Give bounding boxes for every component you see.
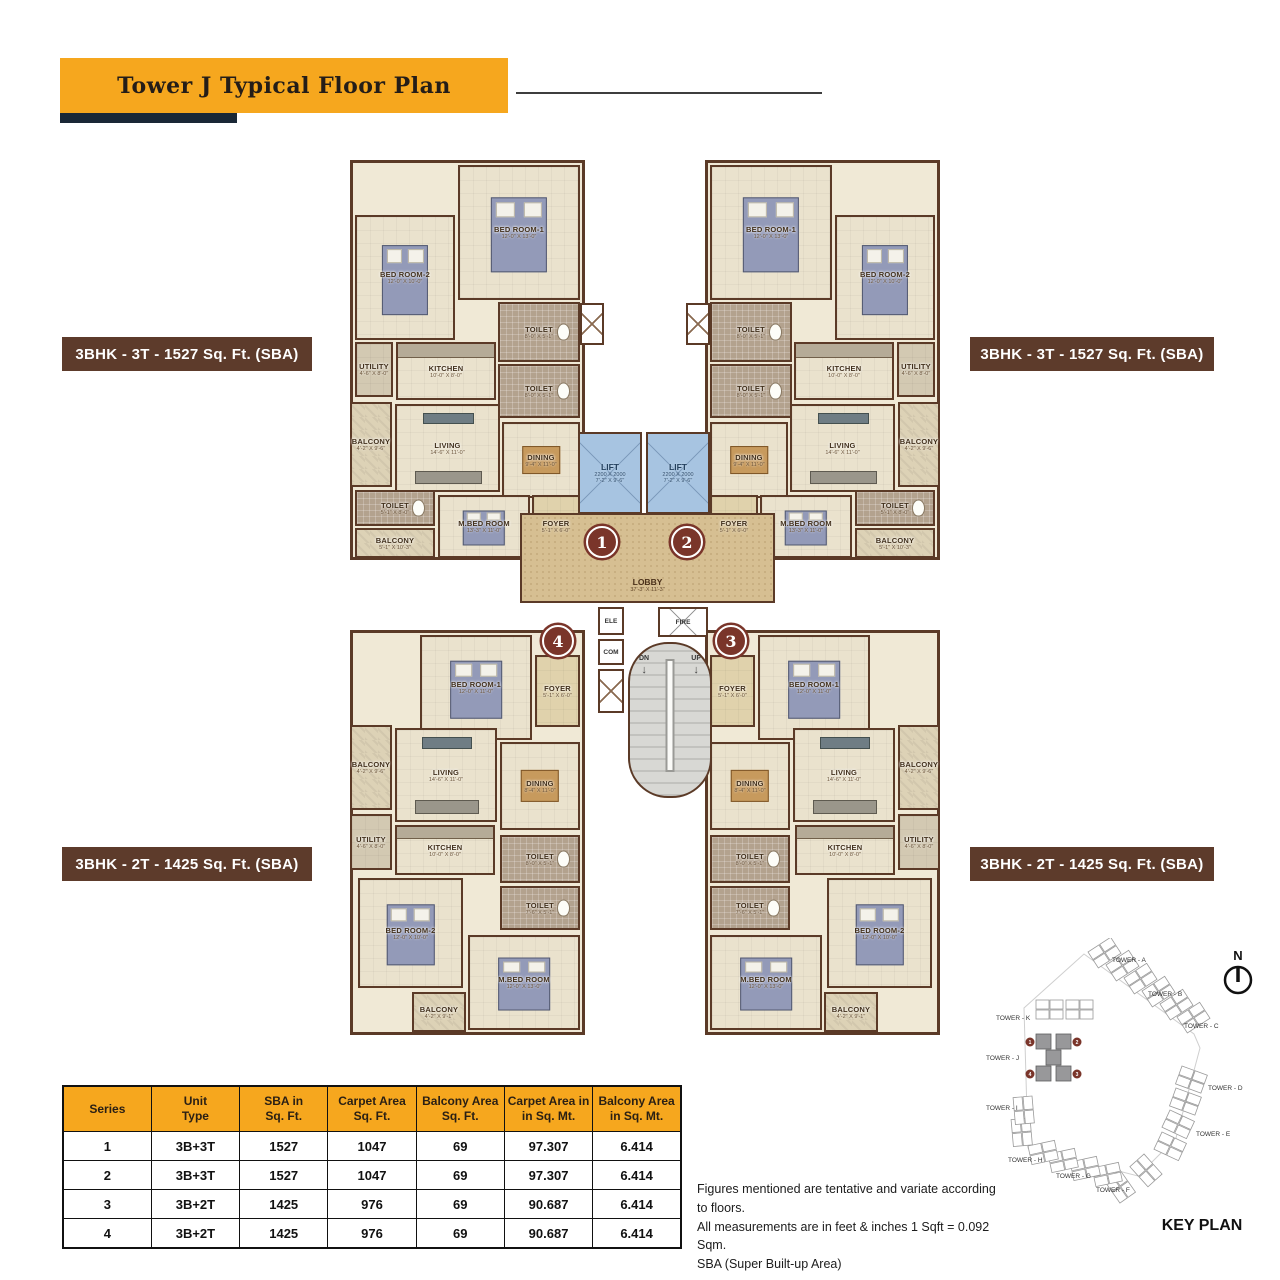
- lobby-dim: 37'-3" X 11'-3": [630, 587, 664, 593]
- table-cell: 2: [63, 1161, 151, 1190]
- toilet-wc-icon: [412, 500, 425, 517]
- tower-c-label: TOWER - C: [1184, 1023, 1219, 1030]
- sofa-icon: [415, 800, 480, 814]
- room-mbed: M.BED ROOM13'-3" X 11'-0": [438, 495, 530, 558]
- room-utility: UTILITY4'-6" X 8'-0": [350, 814, 392, 870]
- room-name: TOILET: [525, 384, 553, 393]
- room-dimension: 8'-0" X 5'-1": [525, 334, 554, 340]
- room-dimension: 4'-2" X 9'-1": [837, 1014, 866, 1020]
- room-name: BALCONY: [832, 1005, 870, 1014]
- bed-icon: [855, 904, 903, 965]
- table-header-cell: Balcony Area Sq. Ft.: [416, 1086, 504, 1132]
- room-toilet2: TOILET8'-0" X 5'-1": [498, 364, 580, 418]
- room-living: LIVING14'-6" X 11'-0": [793, 728, 895, 822]
- tower-d-label: TOWER - D: [1208, 1085, 1243, 1092]
- table-header-cell: Carpet Area Sq. Ft.: [328, 1086, 416, 1132]
- table-header-cell: Series: [63, 1086, 151, 1132]
- room-name: TOILET: [526, 901, 554, 910]
- room-mbed: M.BED ROOM12'-0" X 13'-0": [468, 935, 580, 1030]
- room-toilet2: TOILET7'-6" X 5'-1": [500, 886, 580, 930]
- room-name: KITCHEN: [827, 364, 862, 373]
- bed-icon: [743, 197, 799, 272]
- lift-label: LIFT: [601, 462, 619, 472]
- room-balcony1: BALCONY4'-2" X 9'-6": [350, 402, 392, 487]
- table-cell: 976: [328, 1219, 416, 1249]
- unit-top-right: BED ROOM-212'-0" X 10'-0"BED ROOM-112'-0…: [705, 160, 940, 560]
- room-kitchen: KITCHEN10'-0" X 8'-0": [795, 825, 895, 875]
- fire-shaft: FIRE: [658, 607, 708, 637]
- lobby: LOBBY 37'-3" X 11'-3": [520, 513, 775, 603]
- tower-h-label: TOWER - H: [1008, 1157, 1043, 1164]
- page: Tower J Typical Floor Plan 3BHK - 3T - 1…: [0, 0, 1280, 1280]
- table-header-cell: Unit Type: [151, 1086, 239, 1132]
- tower-b-label: TOWER - B: [1148, 991, 1182, 998]
- room-dimension: 4'-2" X 9'-6": [905, 769, 934, 775]
- table-cell: 1425: [240, 1219, 328, 1249]
- duct-shaft: [598, 669, 624, 713]
- lift-dim-ft: 7'-2" X 9'-6": [664, 478, 693, 484]
- room-toilet3: TOILET5'-1" X 8'-0": [355, 490, 435, 526]
- tv-unit-icon: [818, 413, 868, 424]
- room-foyer: FOYER5'-1" X 6'-0": [535, 655, 580, 727]
- unit-label-bottom-right: 3BHK - 2T - 1425 Sq. Ft. (SBA): [970, 847, 1214, 881]
- tv-unit-icon: [422, 737, 471, 749]
- room-dimension: 5'-1" X 10'-3": [879, 545, 911, 551]
- room-balcony1: BALCONY4'-2" X 9'-6": [350, 725, 392, 810]
- table-cell: 3B+3T: [151, 1132, 239, 1161]
- room-dimension: 5'-1" X 10'-3": [379, 545, 411, 551]
- stair-rail: [666, 659, 675, 771]
- room-dimension: 7'-6" X 5'-1": [526, 910, 555, 916]
- table-row: 23B+3T152710476997.3076.414: [63, 1161, 681, 1190]
- room-name: BALCONY: [900, 760, 938, 769]
- tower-j-label: TOWER - J: [986, 1055, 1019, 1062]
- room-dining: DINING8'-4" X 11'-0": [500, 742, 580, 830]
- table-cell: 1047: [328, 1132, 416, 1161]
- toilet-wc-icon: [557, 324, 570, 341]
- room-name: KITCHEN: [828, 843, 863, 852]
- svg-text:2: 2: [1076, 1040, 1079, 1046]
- table-cell: 69: [416, 1219, 504, 1249]
- table-header-cell: Carpet Area in in Sq. Mt.: [504, 1086, 592, 1132]
- table-cell: 6.414: [593, 1219, 681, 1249]
- room-bed2: BED ROOM-212'-0" X 10'-0": [835, 215, 935, 340]
- room-toilet3: TOILET5'-1" X 8'-0": [855, 490, 935, 526]
- room-dimension: 4'-6" X 8'-0": [357, 844, 386, 850]
- lift-dim-ft: 7'-2" X 9'-6": [596, 478, 625, 484]
- room-dimension: 4'-2" X 9'-6": [357, 446, 386, 452]
- table-cell: 69: [416, 1161, 504, 1190]
- svg-text:1: 1: [1029, 1040, 1032, 1046]
- bed-icon: [450, 660, 502, 719]
- unit-top-left: BED ROOM-212'-0" X 10'-0"BED ROOM-112'-0…: [350, 160, 585, 560]
- unit-marker-3: 3: [715, 625, 747, 657]
- unit-bottom-left: BED ROOM-112'-0" X 11'-0"FOYER5'-1" X 6'…: [350, 630, 585, 1035]
- table-cell: 3: [63, 1190, 151, 1219]
- tv-unit-icon: [423, 413, 473, 424]
- room-dining: DINING8'-4" X 11'-0": [710, 742, 790, 830]
- unit-label-top-right: 3BHK - 3T - 1527 Sq. Ft. (SBA): [970, 337, 1214, 371]
- bed-icon: [785, 510, 827, 545]
- room-bed2: BED ROOM-212'-0" X 10'-0": [827, 878, 932, 988]
- room-name: TOILET: [381, 501, 409, 510]
- room-dimension: 8'-0" X 5'-1": [526, 861, 555, 867]
- key-plan-title: KEY PLAN: [1162, 1217, 1243, 1234]
- room-balcony1: BALCONY4'-2" X 9'-6": [898, 725, 940, 810]
- toilet-wc-icon: [767, 900, 780, 917]
- north-compass-icon: N: [1225, 948, 1251, 993]
- down-arrow-icon: ↓: [691, 663, 701, 677]
- room-dimension: 7'-6" X 5'-1": [736, 910, 765, 916]
- down-arrow-icon: ↓: [639, 663, 649, 677]
- room-living: LIVING14'-6" X 11'-0": [790, 404, 895, 492]
- room-mbed: M.BED ROOM12'-0" X 13'-0": [710, 935, 822, 1030]
- room-name: LIVING: [434, 441, 460, 450]
- room-name: BALCONY: [352, 437, 390, 446]
- duct-shaft: [686, 303, 710, 345]
- sofa-icon: [810, 471, 877, 484]
- room-name: TOILET: [736, 901, 764, 910]
- table-cell: 6.414: [593, 1190, 681, 1219]
- title-underline-bar: [60, 113, 237, 123]
- room-name: TOILET: [525, 325, 553, 334]
- unit-label-bottom-left: 3BHK - 2T - 1425 Sq. Ft. (SBA): [62, 847, 312, 881]
- room-foyer: FOYER5'-1" X 6'-0": [710, 655, 755, 727]
- staircase: DN↓ UP↓: [628, 642, 712, 798]
- table-header-cell: Balcony Area in Sq. Mt.: [593, 1086, 681, 1132]
- kitchen-counter-icon: [797, 827, 893, 839]
- tower-g-label: TOWER - G: [1056, 1173, 1091, 1180]
- table-cell: 976: [328, 1190, 416, 1219]
- room-name: BALCONY: [900, 437, 938, 446]
- room-dimension: 4'-6" X 8'-0": [360, 371, 389, 377]
- table-cell: 1: [63, 1132, 151, 1161]
- unit-label-top-left: 3BHK - 3T - 1527 Sq. Ft. (SBA): [62, 337, 312, 371]
- tower-j-highlight: [1036, 1034, 1071, 1081]
- room-dimension: 5'-1" X 8'-0": [881, 510, 910, 516]
- notes: Figures mentioned are tentative and vari…: [697, 1180, 1007, 1274]
- room-name: UTILITY: [356, 835, 386, 844]
- room-name: TOILET: [736, 852, 764, 861]
- room-dimension: 4'-6" X 8'-0": [905, 844, 934, 850]
- table-cell: 3B+3T: [151, 1161, 239, 1190]
- room-name: KITCHEN: [429, 364, 464, 373]
- electrical-shaft: ELE: [598, 607, 624, 635]
- unit-bottom-right: BED ROOM-112'-0" X 11'-0"FOYER5'-1" X 6'…: [705, 630, 940, 1035]
- room-toilet1: TOILET8'-0" X 5'-1": [498, 302, 580, 362]
- room-name: BALCONY: [876, 536, 914, 545]
- table-header-cell: SBA in Sq. Ft.: [240, 1086, 328, 1132]
- duct-shaft: [580, 303, 604, 345]
- room-name: KITCHEN: [428, 843, 463, 852]
- bed-icon: [740, 958, 792, 1011]
- page-title: Tower J Typical Floor Plan: [117, 73, 451, 99]
- room-dimension: 10'-0" X 8'-0": [829, 852, 861, 858]
- room-utility: UTILITY4'-6" X 8'-0": [898, 814, 940, 870]
- note-line: Figures mentioned are tentative and vari…: [697, 1180, 1007, 1218]
- room-name: FOYER: [719, 684, 746, 693]
- table-cell: 1527: [240, 1132, 328, 1161]
- room-balcony2: BALCONY5'-1" X 10'-3": [355, 528, 435, 558]
- room-living: LIVING14'-6" X 11'-0": [395, 728, 497, 822]
- room-living: LIVING14'-6" X 11'-0": [395, 404, 500, 492]
- tower-e-label: TOWER - E: [1196, 1131, 1231, 1138]
- toilet-wc-icon: [769, 324, 782, 341]
- room-dimension: 5'-1" X 6'-0": [543, 693, 572, 699]
- room-dimension: 8'-0" X 5'-1": [737, 393, 766, 399]
- table-cell: 69: [416, 1132, 504, 1161]
- title-banner: Tower J Typical Floor Plan: [60, 58, 508, 113]
- table-cell: 90.687: [504, 1190, 592, 1219]
- lobby-label: LOBBY: [633, 577, 663, 587]
- toilet-wc-icon: [767, 851, 780, 868]
- tv-unit-icon: [820, 737, 869, 749]
- bed-icon: [463, 510, 505, 545]
- table-header-row: SeriesUnit TypeSBA in Sq. Ft.Carpet Area…: [63, 1086, 681, 1132]
- note-line: SBA (Super Built-up Area): [697, 1255, 1007, 1274]
- table-cell: 3B+2T: [151, 1190, 239, 1219]
- room-dimension: 8'-0" X 5'-1": [736, 861, 765, 867]
- sofa-icon: [813, 800, 878, 814]
- room-toilet1: TOILET8'-0" X 5'-1": [710, 835, 790, 883]
- room-kitchen: KITCHEN10'-0" X 8'-0": [794, 342, 894, 400]
- bed-icon: [788, 660, 840, 719]
- svg-text:4: 4: [1029, 1072, 1032, 1078]
- toilet-wc-icon: [557, 851, 570, 868]
- sofa-icon: [415, 471, 482, 484]
- room-dimension: 10'-0" X 8'-0": [429, 852, 461, 858]
- note-line: All measurements are in feet & inches 1 …: [697, 1218, 1007, 1256]
- room-name: UTILITY: [359, 362, 389, 371]
- room-bed1: BED ROOM-112'-0" X 13'-0": [458, 165, 580, 300]
- room-dimension: 14'-6" X 11'-0": [429, 777, 463, 783]
- bed-icon: [382, 245, 428, 315]
- stair-up: UP↓: [691, 654, 701, 677]
- lift-2: LIFT 2200 X 2000 7'-2" X 9'-6": [646, 432, 710, 514]
- room-dimension: 4'-6" X 8'-0": [902, 371, 931, 377]
- room-dining: DINING9'-4" X 11'-0": [710, 422, 788, 498]
- kitchen-counter-icon: [398, 344, 494, 358]
- room-toilet1: TOILET8'-0" X 5'-1": [710, 302, 792, 362]
- table-cell: 6.414: [593, 1161, 681, 1190]
- table-cell: 1425: [240, 1190, 328, 1219]
- communications-shaft: COM: [598, 639, 624, 665]
- svg-text:3: 3: [1076, 1072, 1079, 1078]
- table-cell: 1527: [240, 1161, 328, 1190]
- table-cell: 3B+2T: [151, 1219, 239, 1249]
- table-cell: 97.307: [504, 1161, 592, 1190]
- room-name: FOYER: [544, 684, 571, 693]
- room-bed1: BED ROOM-112'-0" X 11'-0": [758, 635, 870, 740]
- room-name: TOILET: [737, 384, 765, 393]
- room-name: TOILET: [526, 852, 554, 861]
- tower-f-label: TOWER - F: [1096, 1187, 1130, 1194]
- kitchen-counter-icon: [397, 827, 493, 839]
- tower-k-label: TOWER - K: [996, 1015, 1031, 1022]
- room-bed2: BED ROOM-212'-0" X 10'-0": [355, 215, 455, 340]
- room-name: LIVING: [433, 768, 459, 777]
- stair-down: DN↓: [639, 654, 649, 677]
- table-cell: 90.687: [504, 1219, 592, 1249]
- toilet-wc-icon: [557, 900, 570, 917]
- room-balcony2: BALCONY4'-2" X 9'-1": [412, 992, 466, 1032]
- bed-icon: [491, 197, 547, 272]
- bed-icon: [862, 245, 908, 315]
- unit-marker-2: 2: [671, 526, 703, 558]
- room-balcony2: BALCONY5'-1" X 10'-3": [855, 528, 935, 558]
- room-bed1: BED ROOM-112'-0" X 13'-0": [710, 165, 832, 300]
- table-cell: 69: [416, 1190, 504, 1219]
- room-name: TOILET: [881, 501, 909, 510]
- room-name: BALCONY: [352, 760, 390, 769]
- table-row: 13B+3T152710476997.3076.414: [63, 1132, 681, 1161]
- room-toilet1: TOILET8'-0" X 5'-1": [500, 835, 580, 883]
- room-dimension: 8'-0" X 5'-1": [737, 334, 766, 340]
- room-dimension: 14'-6" X 11'-0": [827, 777, 861, 783]
- unit-marker-1: 1: [586, 526, 618, 558]
- room-name: BALCONY: [420, 1005, 458, 1014]
- table-row: 33B+2T14259766990.6876.414: [63, 1190, 681, 1219]
- room-bed1: BED ROOM-112'-0" X 11'-0": [420, 635, 532, 740]
- room-balcony1: BALCONY4'-2" X 9'-6": [898, 402, 940, 487]
- room-dimension: 4'-2" X 9'-6": [357, 769, 386, 775]
- room-name: UTILITY: [901, 362, 931, 371]
- room-dimension: 10'-0" X 8'-0": [828, 373, 860, 379]
- room-dimension: 10'-0" X 8'-0": [430, 373, 462, 379]
- area-table: SeriesUnit TypeSBA in Sq. Ft.Carpet Area…: [62, 1085, 682, 1249]
- room-dimension: 5'-1" X 8'-0": [381, 510, 410, 516]
- dining-table-icon: [521, 770, 559, 802]
- room-bed2: BED ROOM-212'-0" X 10'-0": [358, 878, 463, 988]
- room-toilet2: TOILET7'-6" X 5'-1": [710, 886, 790, 930]
- unit-marker-4: 4: [542, 625, 574, 657]
- room-toilet2: TOILET8'-0" X 5'-1": [710, 364, 792, 418]
- room-name: TOILET: [737, 325, 765, 334]
- bed-icon: [498, 958, 550, 1011]
- room-name: LIVING: [831, 768, 857, 777]
- table-row: 43B+2T14259766990.6876.414: [63, 1219, 681, 1249]
- table-cell: 97.307: [504, 1132, 592, 1161]
- room-dimension: 5'-1" X 6'-0": [718, 693, 747, 699]
- table-cell: 1047: [328, 1161, 416, 1190]
- svg-text:N: N: [1233, 948, 1242, 963]
- room-utility: UTILITY4'-6" X 8'-0": [897, 342, 935, 397]
- dining-table-icon: [730, 446, 768, 474]
- room-dimension: 8'-0" X 5'-1": [525, 393, 554, 399]
- lift-1: LIFT 2200 X 2000 7'-2" X 9'-6": [578, 432, 642, 514]
- room-dimension: 4'-2" X 9'-1": [425, 1014, 454, 1020]
- room-dining: DINING9'-4" X 11'-0": [502, 422, 580, 498]
- toilet-wc-icon: [769, 383, 782, 400]
- room-name: UTILITY: [904, 835, 934, 844]
- room-name: LIVING: [829, 441, 855, 450]
- lift-label: LIFT: [669, 462, 687, 472]
- table-cell: 4: [63, 1219, 151, 1249]
- kitchen-counter-icon: [796, 344, 892, 358]
- table-cell: 6.414: [593, 1132, 681, 1161]
- room-dimension: 4'-2" X 9'-6": [905, 446, 934, 452]
- dining-table-icon: [522, 446, 560, 474]
- floor-plan: BED ROOM-212'-0" X 10'-0"BED ROOM-112'-0…: [350, 160, 940, 1035]
- bed-icon: [386, 904, 434, 965]
- toilet-wc-icon: [912, 500, 925, 517]
- tower-a-label: TOWER - A: [1112, 957, 1146, 964]
- room-name: BALCONY: [376, 536, 414, 545]
- tower-i-label: TOWER - I: [986, 1105, 1018, 1112]
- dining-table-icon: [731, 770, 769, 802]
- header-rule-line: [516, 92, 822, 94]
- toilet-wc-icon: [557, 383, 570, 400]
- room-dimension: 14'-6" X 11'-0": [430, 450, 464, 456]
- room-utility: UTILITY4'-6" X 8'-0": [355, 342, 393, 397]
- room-dimension: 14'-6" X 11'-0": [825, 450, 859, 456]
- room-kitchen: KITCHEN10'-0" X 8'-0": [395, 825, 495, 875]
- key-plan: 1 2 4 3 TOWER - A TOWER - B TOWER - C TO…: [980, 938, 1280, 1248]
- room-kitchen: KITCHEN10'-0" X 8'-0": [396, 342, 496, 400]
- room-balcony2: BALCONY4'-2" X 9'-1": [824, 992, 878, 1032]
